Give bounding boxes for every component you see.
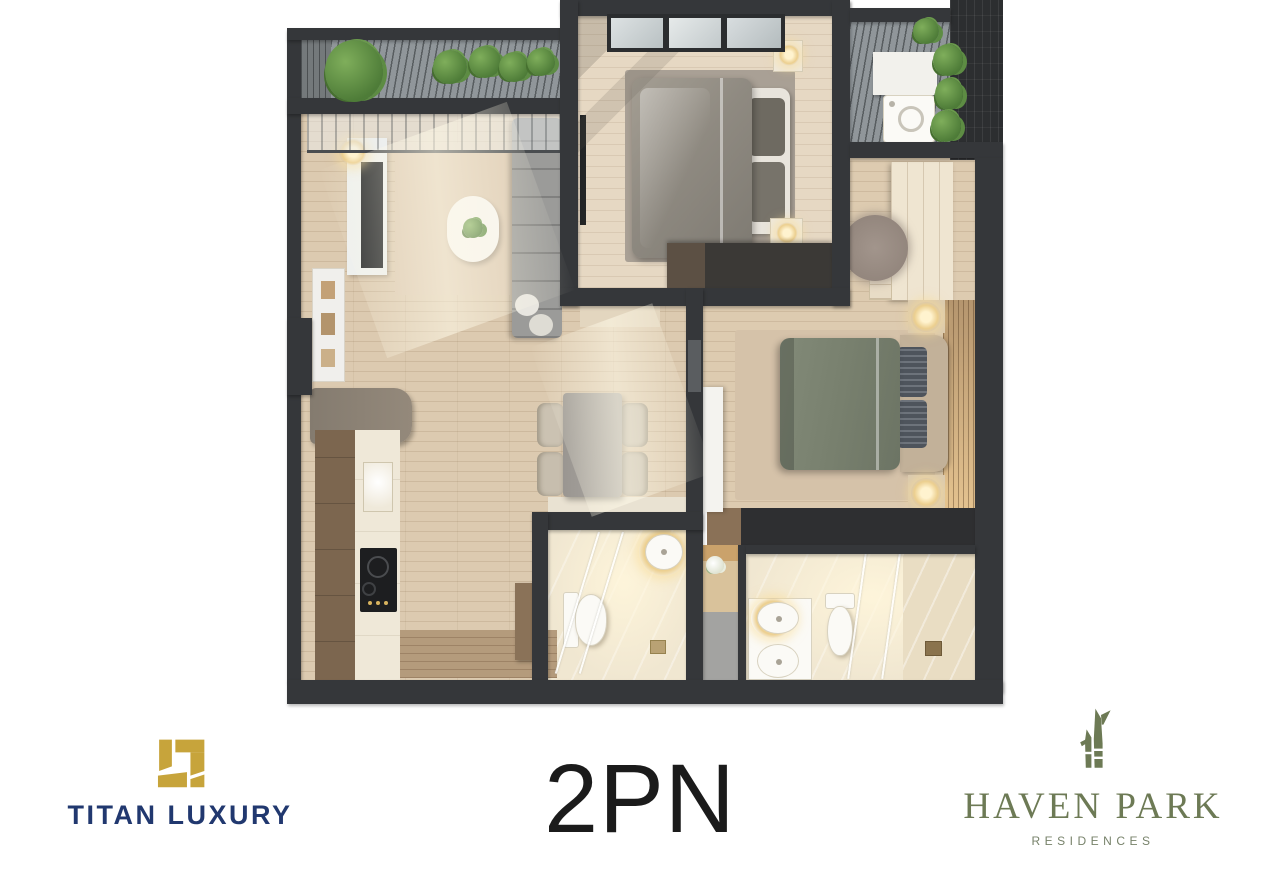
haven-park-logo: HAVEN PARK RESIDENCES bbox=[943, 706, 1243, 848]
bedroom1-dresser bbox=[667, 243, 832, 290]
flower-vase bbox=[706, 556, 724, 574]
wall-bedroom1-right bbox=[832, 0, 850, 306]
bed2-pillow bbox=[897, 347, 927, 397]
floor-plan bbox=[287, 0, 1003, 704]
bedroom2-cabinet bbox=[703, 387, 723, 512]
titan-luxury-name: TITAN LUXURY bbox=[30, 800, 330, 831]
tv bbox=[361, 162, 383, 268]
haven-park-subtitle: RESIDENCES bbox=[943, 834, 1243, 848]
washing-machine bbox=[883, 95, 935, 143]
cooktop bbox=[360, 548, 397, 612]
bathroom2-sink bbox=[757, 602, 799, 634]
laundry-shelf bbox=[873, 52, 937, 95]
kitchen-sink bbox=[363, 462, 393, 512]
balcony-plant bbox=[325, 40, 383, 102]
laundry-plant bbox=[935, 78, 963, 110]
shower-fixture bbox=[925, 641, 942, 656]
table-plant bbox=[463, 218, 483, 238]
haven-park-icon bbox=[1069, 706, 1117, 780]
shaft-floor bbox=[703, 612, 738, 680]
dining-chair bbox=[537, 452, 564, 496]
dining-chair bbox=[537, 403, 564, 447]
bathroom1-sink bbox=[645, 534, 683, 570]
floor-plan-page: TITAN LUXURY 2PN HAVEN PARK RESIDENCES bbox=[0, 0, 1280, 872]
dining-table bbox=[563, 393, 622, 497]
unit-type-label: 2PN bbox=[440, 750, 840, 847]
laundry-plant bbox=[913, 18, 939, 44]
balcony-plant bbox=[469, 46, 501, 78]
dining-chair bbox=[621, 452, 648, 496]
wall-bathroom1-left bbox=[532, 512, 548, 695]
laundry-plant bbox=[933, 44, 963, 76]
pergola-glass bbox=[307, 112, 562, 153]
shelf-unit bbox=[312, 268, 345, 382]
bed2-duvet bbox=[780, 338, 900, 470]
wall-balcony-top bbox=[287, 28, 564, 40]
bed1-duvet bbox=[632, 78, 752, 258]
wall-laundry-bottom bbox=[850, 142, 1003, 158]
bed1-pillow bbox=[749, 98, 785, 156]
sofa-pillow bbox=[529, 314, 553, 336]
wall-pillar bbox=[287, 318, 312, 395]
balcony-plant bbox=[499, 52, 529, 82]
bedroom1-window bbox=[607, 14, 785, 52]
wall-laundry-top bbox=[850, 8, 950, 22]
shower-drain bbox=[650, 640, 666, 654]
bed2-lamp bbox=[911, 478, 941, 508]
round-rug bbox=[842, 215, 908, 281]
titan-luxury-icon bbox=[151, 733, 209, 795]
bathroom2-sink-reflection bbox=[757, 644, 799, 678]
wall-nook-right bbox=[738, 545, 746, 680]
balcony-plant bbox=[433, 50, 467, 84]
bedroom2-desk bbox=[707, 508, 975, 545]
wall-right bbox=[975, 158, 1003, 692]
wall-bathroom1-top bbox=[532, 512, 703, 530]
bedroom2-door bbox=[688, 340, 701, 392]
bedroom1-tv bbox=[580, 115, 586, 225]
wall-balcony-bottom bbox=[287, 98, 564, 114]
sofa-pillow bbox=[515, 294, 539, 316]
washer-door bbox=[898, 106, 924, 132]
bed2-lamp bbox=[911, 302, 941, 332]
bed1-pillow bbox=[749, 162, 785, 222]
wall-bedroom1-left bbox=[560, 0, 578, 306]
laundry-plant bbox=[931, 110, 961, 142]
bed1-lamp bbox=[776, 222, 798, 244]
toilet2 bbox=[827, 606, 853, 656]
wall-bedroom1-bottom bbox=[560, 288, 850, 306]
balcony-plant bbox=[527, 48, 555, 76]
dining-chair bbox=[621, 403, 648, 447]
wall-bottom bbox=[287, 680, 1003, 704]
wall-top-right-block bbox=[950, 0, 1003, 160]
shower-zone bbox=[903, 552, 975, 680]
bed2-pillow bbox=[897, 400, 927, 448]
titan-logo: TITAN LUXURY bbox=[30, 733, 330, 831]
door-mat bbox=[580, 306, 660, 327]
wall-bathroom2-top bbox=[746, 545, 975, 554]
kitchen-cabinets bbox=[315, 430, 355, 688]
haven-park-name: HAVEN PARK bbox=[943, 785, 1243, 828]
bedroom2-desk-wood bbox=[707, 508, 741, 545]
